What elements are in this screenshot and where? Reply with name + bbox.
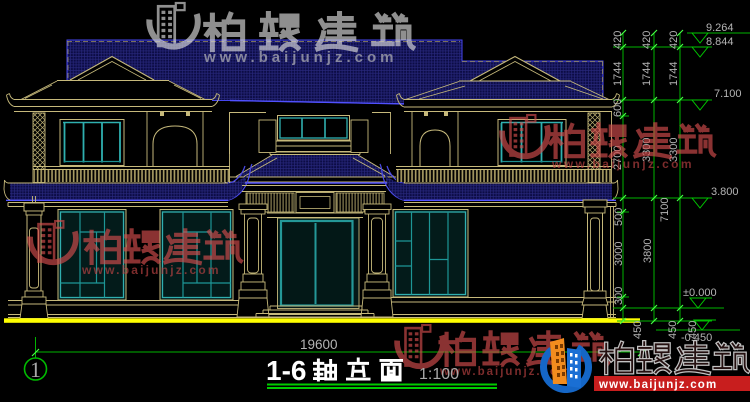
svg-text:420: 420 bbox=[668, 31, 680, 49]
svg-text:450: 450 bbox=[632, 321, 644, 339]
svg-text:3.800: 3.800 bbox=[711, 186, 739, 198]
svg-text:7100: 7100 bbox=[659, 198, 671, 222]
svg-text:300: 300 bbox=[613, 287, 625, 305]
svg-text:8.844: 8.844 bbox=[706, 36, 734, 48]
svg-text:600: 600 bbox=[612, 99, 624, 117]
svg-text:1744: 1744 bbox=[612, 62, 624, 86]
svg-text:www.baijunjz.com: www.baijunjz.com bbox=[551, 157, 694, 171]
svg-text:1: 1 bbox=[30, 357, 41, 382]
svg-text:3800: 3800 bbox=[642, 239, 654, 263]
svg-text:www.baijunjz.com: www.baijunjz.com bbox=[203, 49, 397, 66]
svg-text:1-6: 1-6 bbox=[266, 355, 306, 386]
svg-text:450: 450 bbox=[687, 321, 699, 339]
svg-text:9.264: 9.264 bbox=[706, 22, 734, 34]
svg-text:1:100: 1:100 bbox=[419, 366, 459, 383]
svg-text:www.baijunjz.com: www.baijunjz.com bbox=[81, 263, 221, 277]
svg-text:450: 450 bbox=[667, 321, 679, 339]
svg-text:500: 500 bbox=[613, 208, 625, 226]
svg-text:420: 420 bbox=[612, 31, 624, 49]
svg-text:7.100: 7.100 bbox=[714, 88, 742, 100]
svg-text:3000: 3000 bbox=[613, 242, 625, 266]
svg-text:www.baijunjz.com: www.baijunjz.com bbox=[598, 379, 717, 391]
svg-text:19600: 19600 bbox=[300, 337, 338, 352]
svg-text:1744: 1744 bbox=[641, 62, 653, 86]
svg-text:420: 420 bbox=[641, 31, 653, 49]
svg-text:1744: 1744 bbox=[668, 62, 680, 86]
svg-text:±0.000: ±0.000 bbox=[683, 287, 717, 299]
